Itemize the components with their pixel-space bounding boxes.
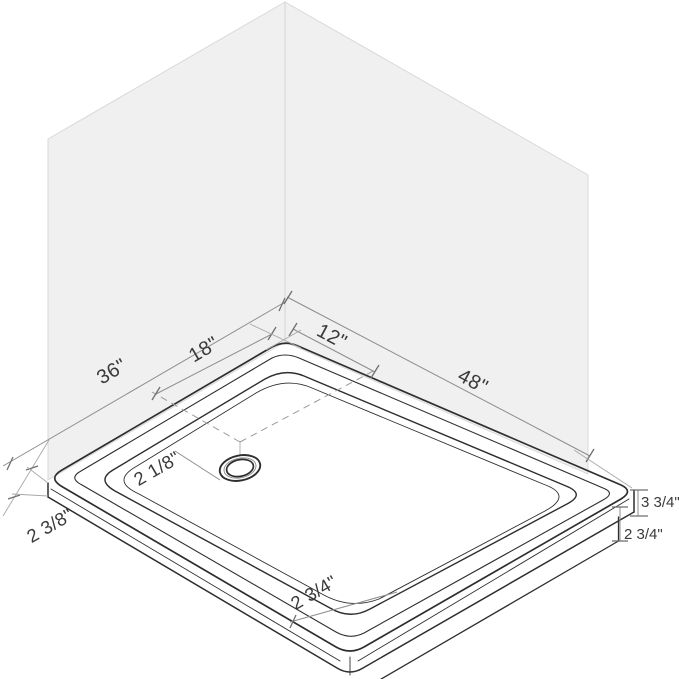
tray-side-band: [48, 480, 634, 676]
dim-label-3-3-4: 3 3/4": [641, 494, 679, 511]
ext-left-corner-top: [27, 467, 48, 483]
tray-rim-roundover-right: [358, 499, 629, 661]
tray-rim-roundover-left: [51, 489, 340, 661]
dim-label-2-1-8: 2 1/8": [130, 447, 183, 490]
right-wall: [285, 2, 588, 474]
dim-label-2-3-8: 2 3/8": [23, 504, 76, 547]
drain-dashed-line-right: [240, 369, 377, 442]
diagram-canvas: 36" 18" 12" 48" 2 1/8" 2 3/8" 2 3/4" 3 3…: [0, 0, 679, 679]
tray-bottom-edge: [48, 497, 634, 672]
shower-base-dimension-diagram: 36" 18" 12" 48" 2 1/8" 2 3/8" 2 3/4" 3 3…: [0, 0, 679, 679]
corner-walls: [48, 2, 588, 480]
dim-label-2-3-4-bottom: 2 3/4": [287, 571, 340, 614]
dim-label-2-3-4-right: 2 3/4": [624, 526, 663, 543]
drain-dashed-line-left: [152, 392, 240, 442]
drain: [217, 452, 262, 485]
